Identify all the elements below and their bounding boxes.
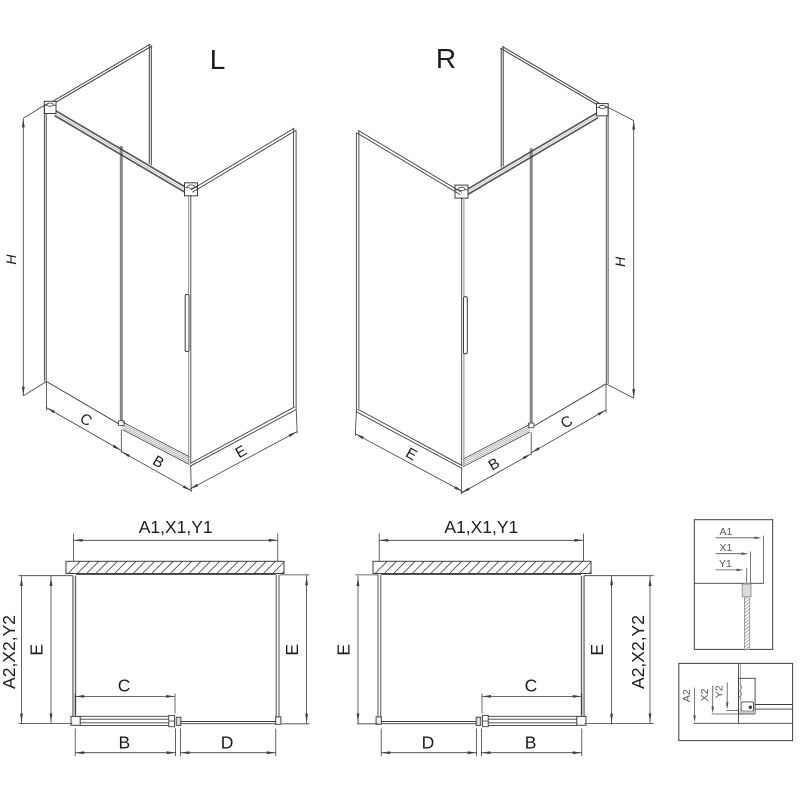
svg-text:E: E xyxy=(233,442,250,462)
svg-text:E: E xyxy=(282,644,302,656)
svg-text:X1: X1 xyxy=(720,542,733,554)
svg-text:C: C xyxy=(118,676,131,696)
svg-text:E: E xyxy=(587,644,607,656)
svg-text:C: C xyxy=(558,412,576,432)
svg-text:D: D xyxy=(221,733,234,753)
svg-text:C: C xyxy=(77,410,95,430)
svg-text:Y1: Y1 xyxy=(719,558,732,570)
svg-text:A2,X2,Y2: A2,X2,Y2 xyxy=(0,615,19,689)
svg-text:C: C xyxy=(525,676,538,696)
svg-text:R: R xyxy=(436,43,456,74)
svg-text:B: B xyxy=(119,733,131,753)
svg-text:A1,X1,Y1: A1,X1,Y1 xyxy=(444,517,518,537)
svg-text:A2: A2 xyxy=(681,689,693,702)
svg-text:E: E xyxy=(27,644,47,656)
svg-text:L: L xyxy=(210,44,226,75)
svg-text:H: H xyxy=(612,256,628,267)
svg-text:E: E xyxy=(403,445,420,465)
svg-text:X2: X2 xyxy=(699,688,711,701)
svg-text:D: D xyxy=(422,733,435,753)
svg-text:H: H xyxy=(3,254,19,265)
svg-text:B: B xyxy=(525,733,537,753)
svg-text:A2,X2,Y2: A2,X2,Y2 xyxy=(628,615,648,689)
svg-text:E: E xyxy=(334,644,354,656)
svg-text:A1: A1 xyxy=(720,526,733,538)
svg-text:A1,X1,Y1: A1,X1,Y1 xyxy=(139,517,213,537)
svg-text:Y2: Y2 xyxy=(714,685,726,698)
